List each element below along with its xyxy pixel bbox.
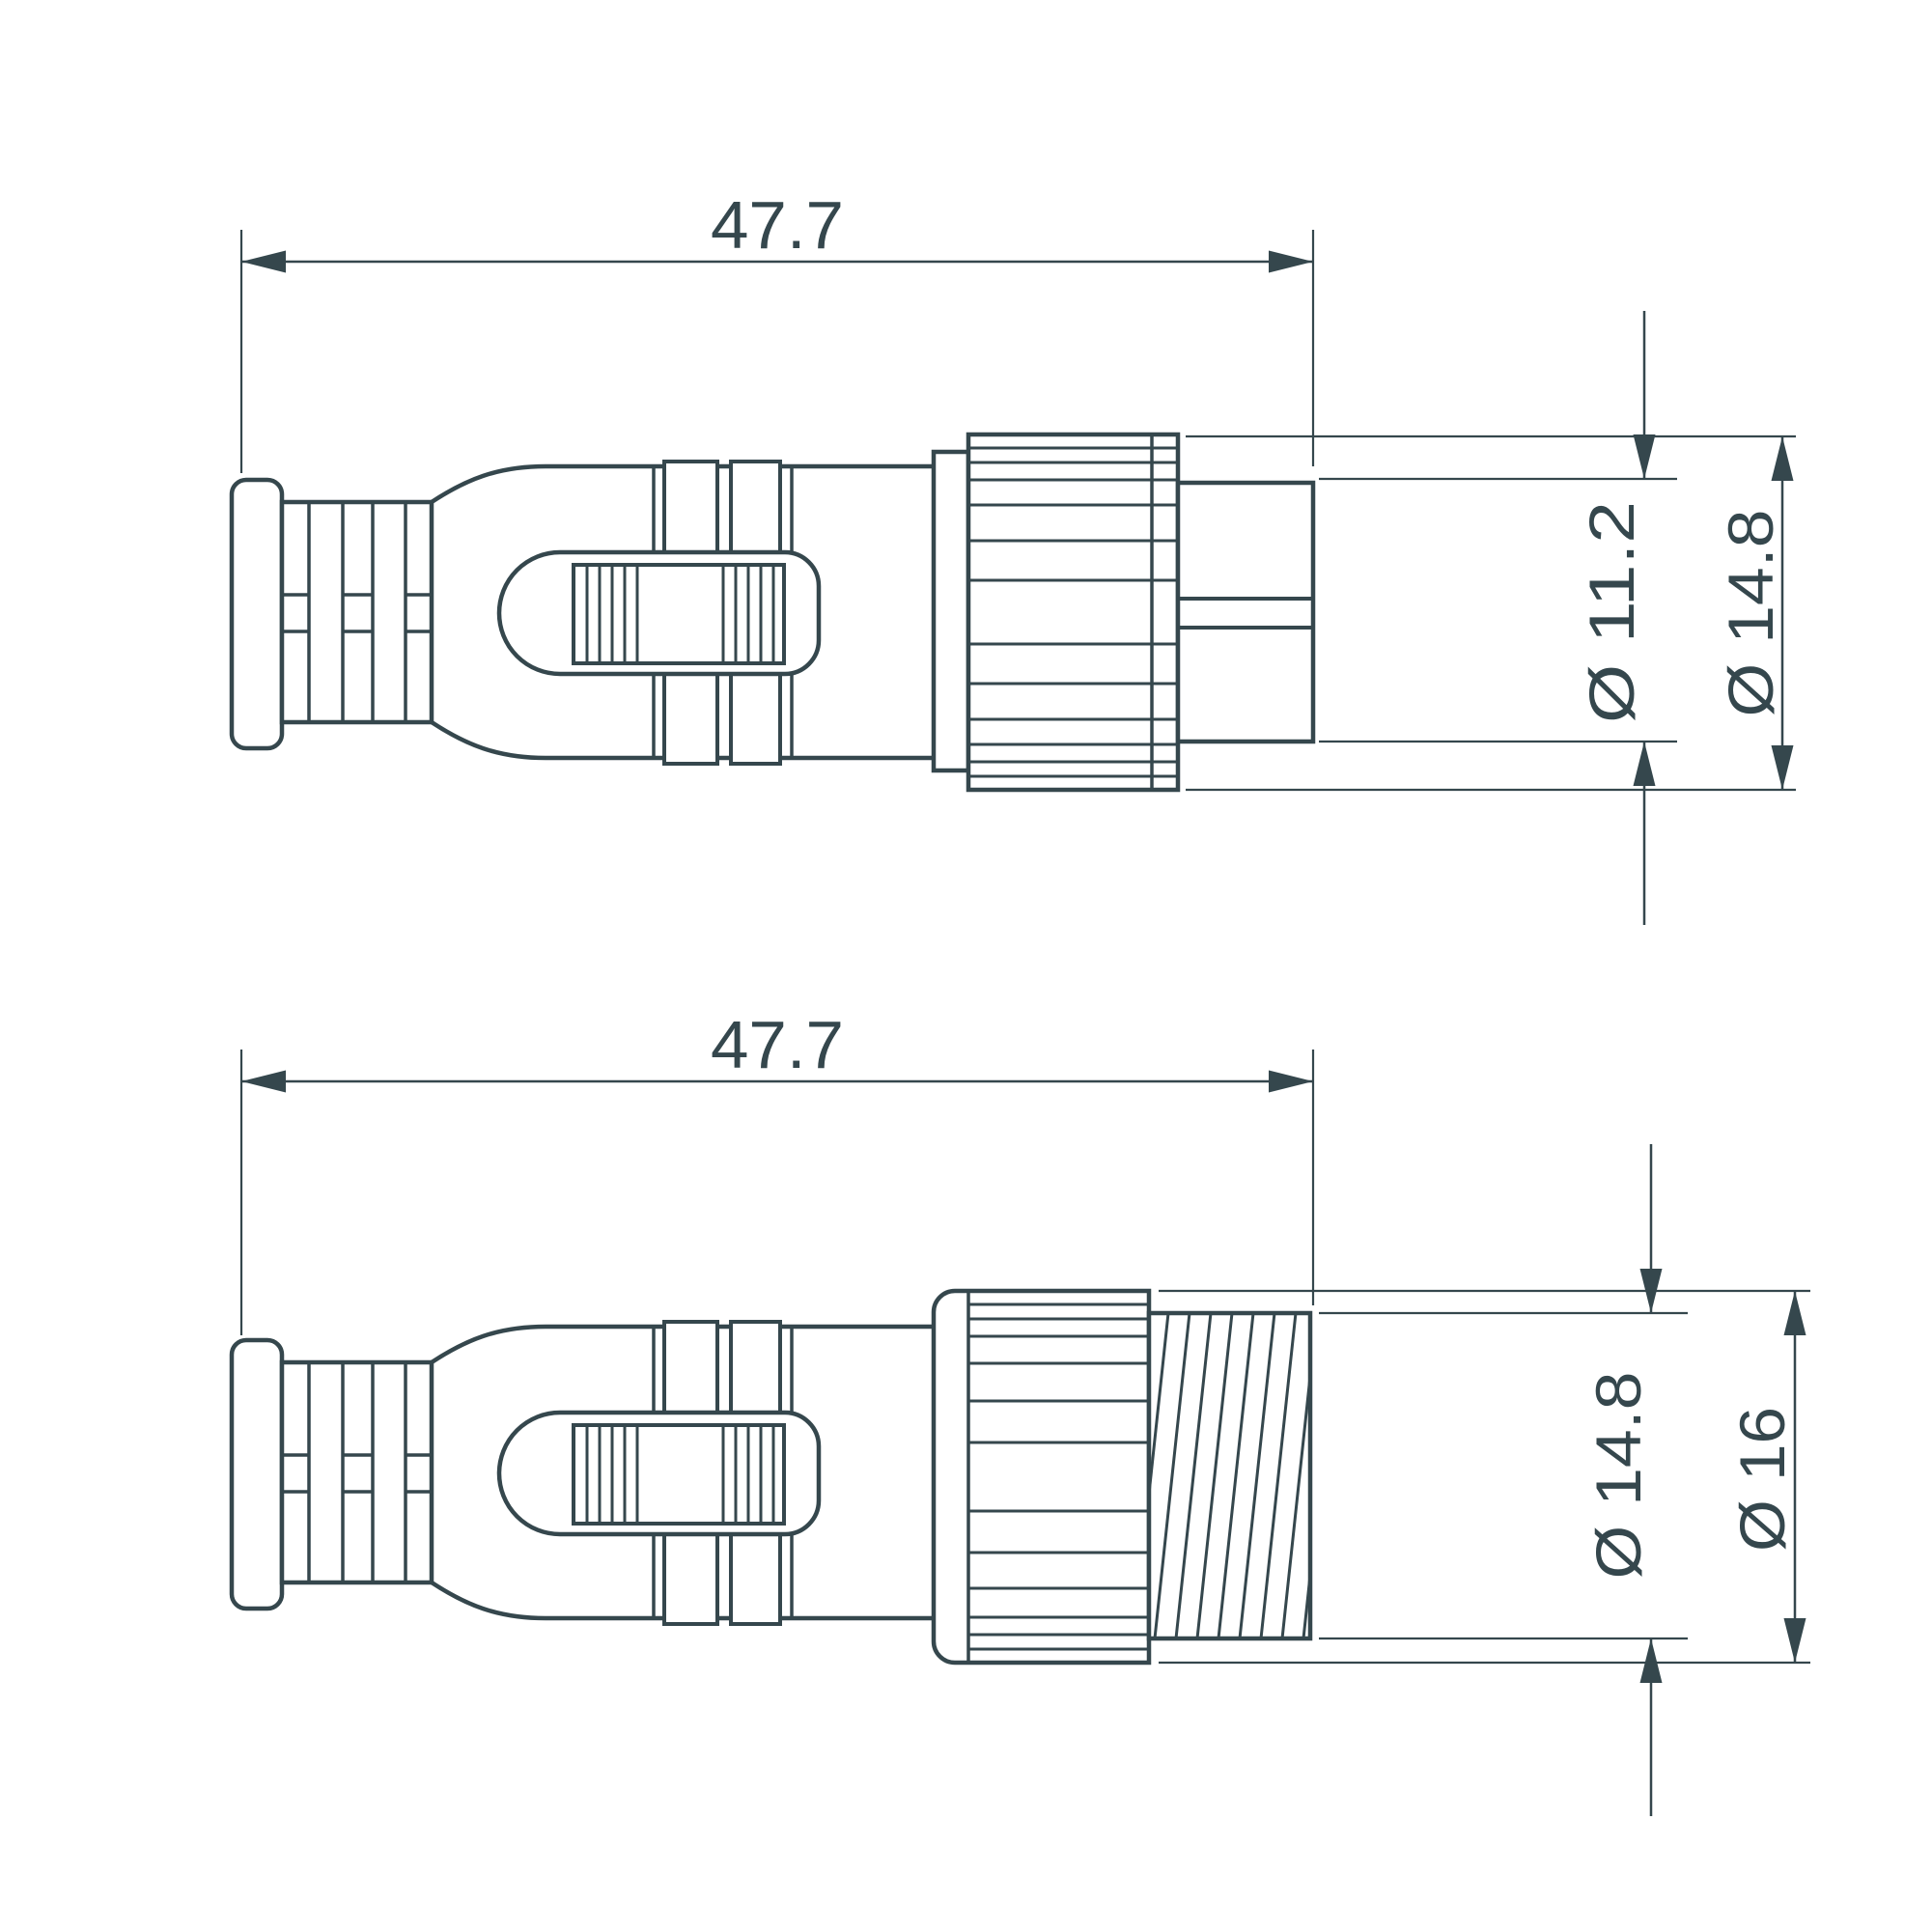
- arrowhead: [1784, 1618, 1806, 1663]
- coupling-nut-bottom: [934, 1291, 1149, 1663]
- pin-housing: [1178, 483, 1313, 742]
- dimension-length-top: 47.7: [241, 187, 1313, 473]
- dimension-length-bottom: 47.7: [241, 1007, 1313, 1335]
- arrowhead: [1784, 1291, 1806, 1335]
- arrowhead: [241, 1071, 286, 1093]
- threaded-end: [1134, 1313, 1338, 1638]
- bottom-view: 47.7 Ø 14.8 Ø 16: [232, 1007, 1810, 1816]
- length-label-top: 47.7: [711, 187, 844, 263]
- arrowhead: [1269, 1071, 1313, 1093]
- arrowhead: [1640, 1638, 1663, 1683]
- dimension-thread-diameter: Ø 14.8: [1319, 1144, 1688, 1816]
- arrowhead: [241, 251, 286, 273]
- arrowhead: [1634, 434, 1656, 479]
- length-label-bottom: 47.7: [711, 1007, 844, 1082]
- top-view: 47.7 Ø 11.2 Ø 14.8: [232, 187, 1796, 925]
- pin-diameter-label: Ø 11.2: [1576, 501, 1647, 723]
- technical-drawing-canvas: 47.7 Ø 11.2 Ø 14.8: [0, 0, 1932, 1932]
- arrowhead: [1772, 436, 1794, 481]
- arrowhead: [1269, 251, 1313, 273]
- nut-diameter-label-bottom: Ø 16: [1726, 1407, 1798, 1552]
- dimension-pin-diameter: Ø 11.2: [1319, 311, 1677, 925]
- coupling-nut: [968, 434, 1178, 790]
- arrowhead: [1772, 745, 1794, 790]
- collar: [934, 452, 968, 770]
- nut-diameter-label-top: Ø 14.8: [1715, 510, 1786, 717]
- thread-diameter-label: Ø 14.8: [1582, 1372, 1654, 1580]
- arrowhead: [1634, 742, 1656, 786]
